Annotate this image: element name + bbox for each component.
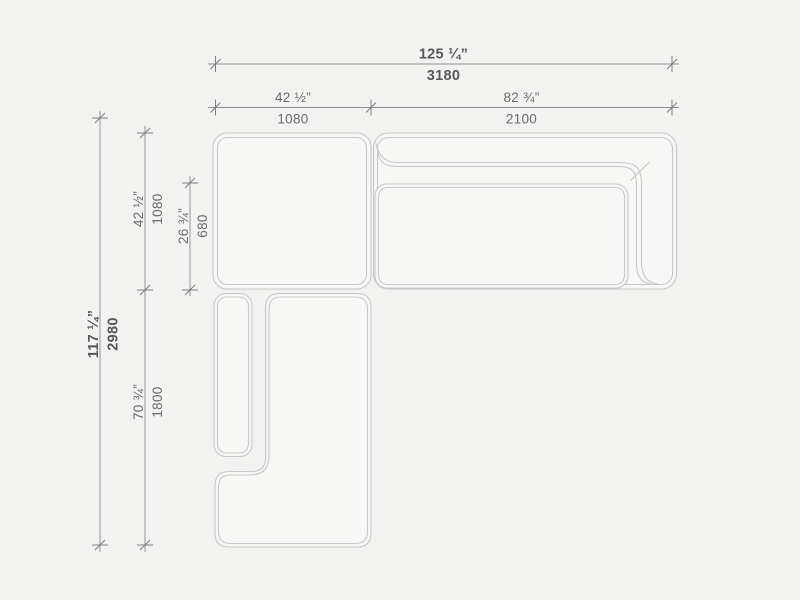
seat-cushion-outline [375,184,628,288]
corner-module-outline [213,133,371,289]
corner-module [213,133,371,289]
label-chaise-depth-mm: 1800 [150,386,165,417]
chaise-armrest-outline [214,294,252,457]
dimension-lines [92,56,679,552]
label-top-depth-inches: 42 ½” [131,191,146,227]
label-seat-depth-mm: 680 [195,214,210,237]
label-right-width-mm: 2100 [506,112,537,127]
furniture-plan [213,133,677,547]
label-left-width-inches: 42 ½” [275,90,311,105]
label-chaise-depth-inches: 70 ¾” [131,384,146,420]
label-top-depth-mm: 1080 [150,193,165,224]
dim-module-depths [137,126,153,552]
chaise-module [214,294,371,548]
sofa-module [374,133,677,289]
sofa-plan-drawing: 125 ¼” 3180 42 ½” 1080 82 ¾” 2100 117 ¼”… [0,0,800,600]
label-seat-depth-inches: 26 ¾” [176,208,191,244]
label-total-depth-mm: 2980 [106,317,122,350]
label-total-width-mm: 3180 [427,68,460,84]
label-right-width-inches: 82 ¾” [503,90,539,105]
label-left-width-mm: 1080 [277,112,308,127]
label-total-depth-inches: 117 ¼” [86,310,102,359]
label-total-width-inches: 125 ¼” [419,47,468,63]
